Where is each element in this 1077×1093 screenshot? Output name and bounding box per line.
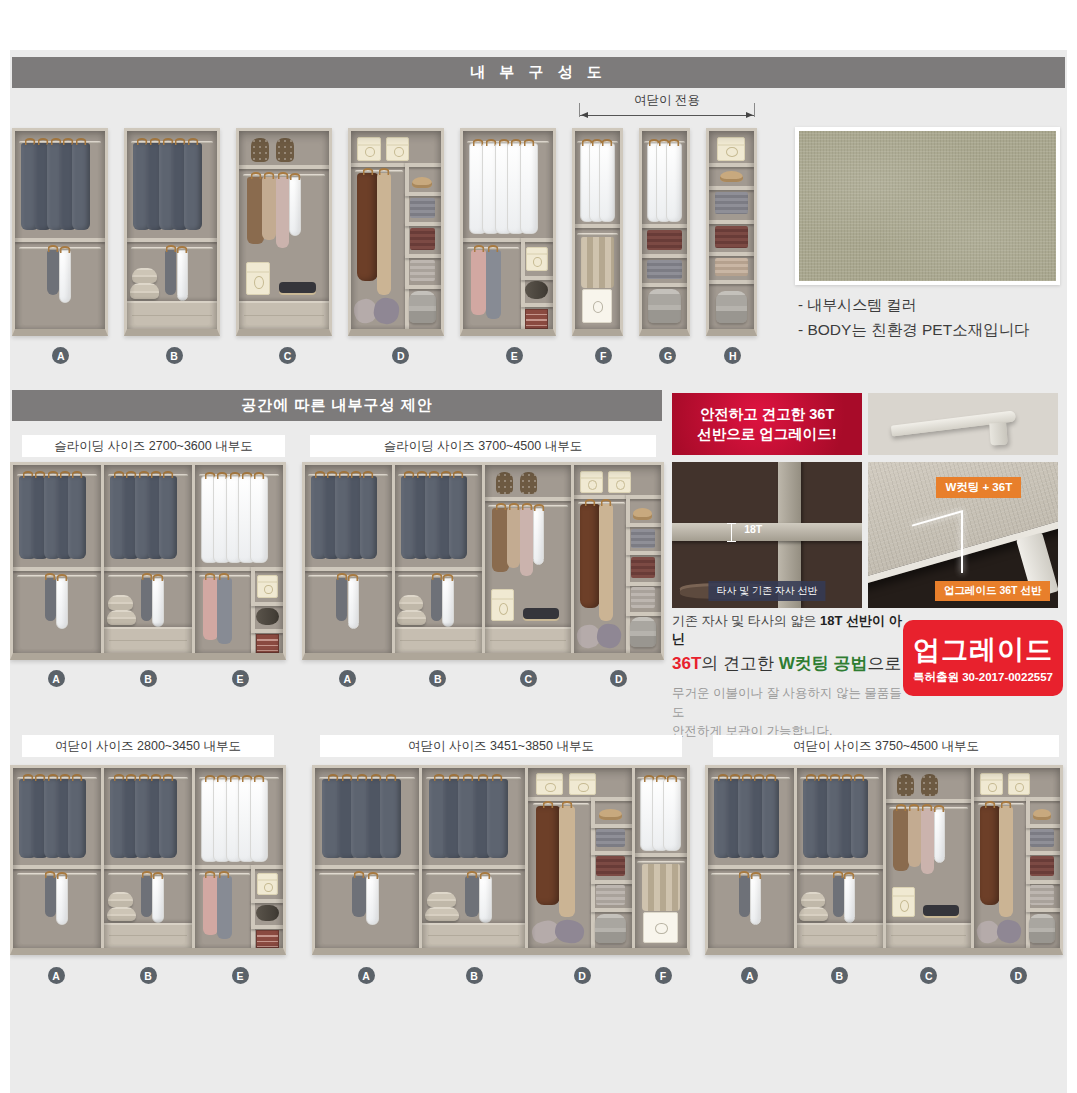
unit-letter-badge: C [279, 347, 296, 364]
upgrade-callout-badge: 안전하고 견고한 36T 선반으로 업그레이드! [672, 393, 862, 455]
main-header-title: 내 부 구 성 도 [470, 63, 607, 82]
unit-letter-badge: B [831, 967, 848, 984]
hinged3-title: 여닫이 사이즈 3750~4500 내부도 [793, 738, 979, 755]
hinged2-title: 여닫이 사이즈 3451~3850 내부도 [408, 738, 594, 755]
hinged3-label: 여닫이 사이즈 3750~4500 내부도 [713, 735, 1059, 757]
unit-badge-slot: F [636, 967, 690, 984]
unit-badge-slot: D [352, 347, 449, 364]
desc-small-line1: 무거운 이불이나 잘 사용하지 않는 물품들도 [672, 686, 902, 719]
wardrobe-unit-a [13, 465, 101, 653]
upgrade-callout-line2: 선반으로 업그레이드! [697, 426, 836, 442]
top-units-badges: ABCDEFGH [12, 347, 757, 364]
unit-badge-slot: H [708, 347, 757, 364]
wcut-badge: W컷팅 + 36T [936, 477, 1021, 498]
wardrobe-unit-b [101, 768, 192, 948]
old-shelf-image: 18T 타사 및 기존 자사 선반 [672, 462, 862, 608]
wardrobe-unit-a [12, 128, 108, 336]
old-shelf-caption: 타사 및 기존 자사 선반 [708, 581, 825, 601]
wardrobe-unit-d [525, 768, 632, 948]
desc-36t-red: 36T [672, 654, 701, 673]
old-thickness-label: 18T [744, 523, 762, 535]
swatch-caption-1: - 내부시스템 컬러 [798, 296, 916, 315]
unit-badge-slot: B [102, 967, 194, 984]
wardrobe-unit-a [708, 768, 794, 948]
wardrobe-unit-e [192, 465, 283, 653]
new-shelf-image: W컷팅 + 36T 업그레이드 36T 선반 [868, 462, 1058, 608]
bracket-arrow-line [579, 115, 755, 116]
unit-letter-badge: F [595, 347, 612, 364]
wardrobe-unit-f [632, 768, 687, 948]
unit-letter-badge: D [1010, 967, 1027, 984]
unit-badge-slot: D [574, 670, 665, 687]
unit-letter-badge: E [506, 347, 523, 364]
unit-letter-badge: A [52, 347, 69, 364]
top-units-row [12, 128, 757, 336]
wardrobe-unit-d [348, 128, 444, 336]
unit-badge-slot: C [483, 670, 574, 687]
wardrobe-unit-b [101, 465, 192, 653]
unit-badge-slot: A [705, 967, 795, 984]
hinged-only-label: 여닫이 전용 [634, 93, 700, 107]
unit-badge-slot: E [466, 347, 563, 364]
desc-line-1: 기존 자사 및 타사의 얇은 18T 선반이 아닌 [672, 612, 910, 648]
unit-badge-slot: A [10, 967, 102, 984]
unit-badge-slot: A [10, 670, 102, 687]
unit-badge-slot: A [312, 967, 420, 984]
unit-badge-slot: E [194, 670, 286, 687]
desc-line2-end: 으로 [868, 654, 902, 673]
unit-letter-badge: E [232, 670, 249, 687]
section-header-title: 공간에 따른 내부구성 제안 [241, 396, 433, 415]
wardrobe-unit-b [392, 465, 482, 653]
sliding1-label: 슬라이딩 사이즈 2700~3600 내부도 [22, 435, 285, 457]
hinged-only-bracket: 여닫이 전용 [579, 92, 755, 116]
section-header-bar: 공간에 따른 내부구성 제안 [12, 390, 662, 421]
hinged2-label: 여닫이 사이즈 3451~3850 내부도 [320, 735, 682, 757]
wardrobe-unit-e [460, 128, 556, 336]
unit-letter-badge: B [166, 347, 183, 364]
wardrobe-unit-g [639, 128, 690, 336]
stamp-patent-number: 특허출원 30-2017-0022557 [913, 670, 1053, 685]
unit-letter-badge: F [655, 967, 672, 984]
old-shelf-horizontal-panel [672, 523, 862, 541]
wardrobe-unit-e [192, 768, 283, 948]
unit-letter-badge: A [339, 670, 356, 687]
upgrade-description: 기존 자사 및 타사의 얇은 18T 선반이 아닌 36T의 견고한 W컷팅 공… [672, 612, 910, 740]
wardrobe-unit-b [419, 768, 526, 948]
thickness-measure-mark [731, 523, 732, 542]
unit-letter-badge: D [392, 347, 409, 364]
unit-letter-badge: A [48, 670, 65, 687]
wardrobe-unit-d [971, 768, 1060, 948]
wardrobe-unit-c [236, 128, 332, 336]
unit-letter-badge: A [741, 967, 758, 984]
unit-badge-slot: A [12, 347, 109, 364]
wardrobe-unit-b [794, 768, 883, 948]
upgrade-callout-line1: 안전하고 견고한 36T [700, 406, 835, 422]
unit-letter-badge: A [48, 967, 65, 984]
sliding2-composite [302, 462, 664, 660]
unit-badge-slot: B [795, 967, 885, 984]
unit-badge-slot: D [974, 967, 1064, 984]
unit-badge-slot: B [420, 967, 528, 984]
product-detail-page: 내 부 구 성 도 여닫이 전용 [0, 0, 1077, 1093]
upgrade-patent-stamp: 업그레이드 특허출원 30-2017-0022557 [903, 620, 1063, 696]
wardrobe-unit-a [315, 768, 419, 948]
hinged1-badges: ABE [10, 967, 286, 984]
unit-letter-badge: D [574, 967, 591, 984]
bracket-tick-right [754, 103, 755, 117]
hinged1-composite [10, 765, 286, 955]
interior-color-swatch [795, 127, 1060, 285]
desc-line-2: 36T의 견고한 W컷팅 공법으로 [672, 652, 910, 675]
unit-badge-slot: B [393, 670, 484, 687]
sliding1-composite [10, 462, 286, 660]
hinged2-badges: ABDF [312, 967, 690, 984]
unit-letter-badge: A [358, 967, 375, 984]
new-shelf-caption: 업그레이드 36T 선반 [935, 581, 1050, 601]
unit-letter-badge: B [429, 670, 446, 687]
unit-badge-slot: C [884, 967, 974, 984]
unit-badge-slot: F [579, 347, 628, 364]
desc-line2-mid: 의 견고한 [701, 654, 778, 673]
unit-badge-slot: G [644, 347, 693, 364]
sliding1-title: 슬라이딩 사이즈 2700~3600 내부도 [54, 438, 252, 455]
hinged2-composite [312, 765, 690, 955]
unit-badge-slot: B [102, 670, 194, 687]
wardrobe-unit-a [305, 465, 392, 653]
unit-badge-slot: B [125, 347, 222, 364]
unit-badge-slot: A [302, 670, 393, 687]
unit-letter-badge: C [920, 967, 937, 984]
unit-letter-badge: B [466, 967, 483, 984]
unit-letter-badge: D [610, 670, 627, 687]
unit-letter-badge: C [520, 670, 537, 687]
main-header-bar: 내 부 구 성 도 [12, 57, 1065, 88]
unit-badge-slot: E [194, 967, 286, 984]
unit-letter-badge: B [140, 967, 157, 984]
bracket-tick-left [579, 103, 580, 117]
wardrobe-unit-d [571, 465, 661, 653]
sliding2-label: 슬라이딩 사이즈 3700~4500 내부도 [310, 435, 656, 457]
wardrobe-unit-a [13, 768, 101, 948]
sliding1-badges: ABE [10, 670, 286, 687]
wardrobe-unit-f [572, 128, 623, 336]
wardrobe-unit-c [482, 465, 572, 653]
desc-small-text: 무거운 이불이나 잘 사용하지 않는 물품들도 안전하게 보관이 가능합니다. [672, 684, 910, 740]
unit-letter-badge: G [659, 347, 676, 364]
corner-marker-vertical [961, 512, 963, 573]
upgrade-callout-text: 안전하고 견고한 36T 선반으로 업그레이드! [697, 404, 836, 445]
swatch-caption-2: - BODY는 친환경 PET소재입니다 [798, 320, 1030, 341]
wardrobe-unit-c [883, 768, 972, 948]
desc-wcut-green: W컷팅 공법 [779, 654, 868, 673]
sliding2-badges: ABCD [302, 670, 664, 687]
hinged1-title: 여닫이 사이즈 2800~3450 내부도 [55, 738, 241, 755]
shelf-profile-image [868, 393, 1058, 455]
sliding2-title: 슬라이딩 사이즈 3700~4500 내부도 [384, 438, 582, 455]
hinged3-badges: ABCD [705, 967, 1063, 984]
stamp-title: 업그레이드 [913, 632, 1053, 668]
shelf-stub-shape [989, 422, 1008, 445]
swatch-texture [799, 131, 1056, 281]
desc-line1-regular: 기존 자사 및 타사의 얇은 [672, 613, 820, 628]
unit-letter-badge: H [724, 347, 741, 364]
unit-letter-badge: B [140, 670, 157, 687]
wardrobe-unit-b [124, 128, 220, 336]
wardrobe-unit-h [706, 128, 757, 336]
unit-badge-slot: C [239, 347, 336, 364]
unit-letter-badge: E [232, 967, 249, 984]
unit-badge-slot: D [528, 967, 636, 984]
hinged3-composite [705, 765, 1063, 955]
hinged1-label: 여닫이 사이즈 2800~3450 내부도 [22, 735, 274, 757]
content-canvas: 내 부 구 성 도 여닫이 전용 [10, 50, 1067, 1093]
